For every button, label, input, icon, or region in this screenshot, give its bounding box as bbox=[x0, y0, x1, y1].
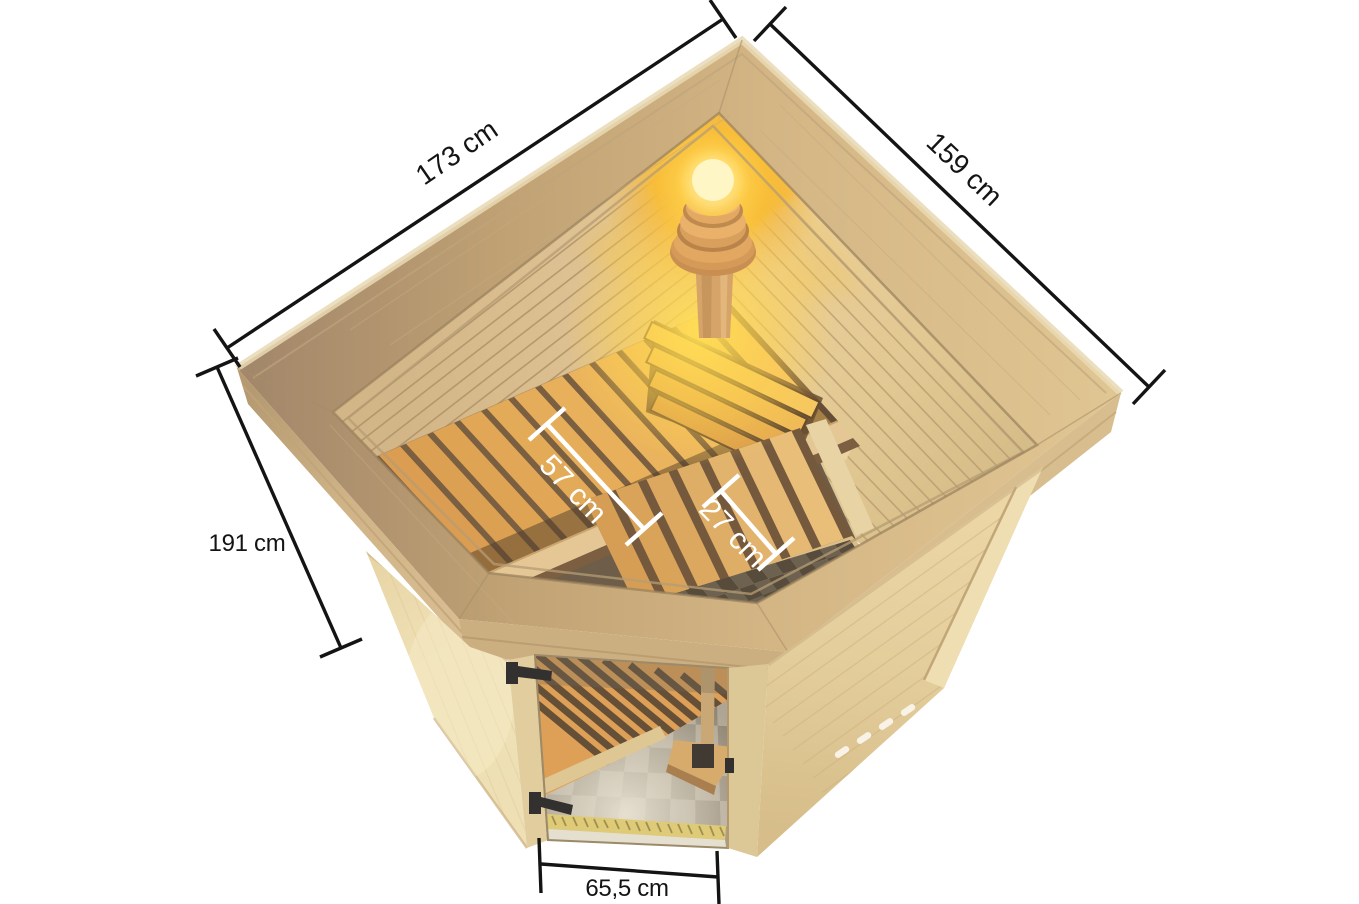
svg-text:65,5 cm: 65,5 cm bbox=[585, 875, 668, 902]
svg-text:191 cm: 191 cm bbox=[209, 530, 286, 557]
